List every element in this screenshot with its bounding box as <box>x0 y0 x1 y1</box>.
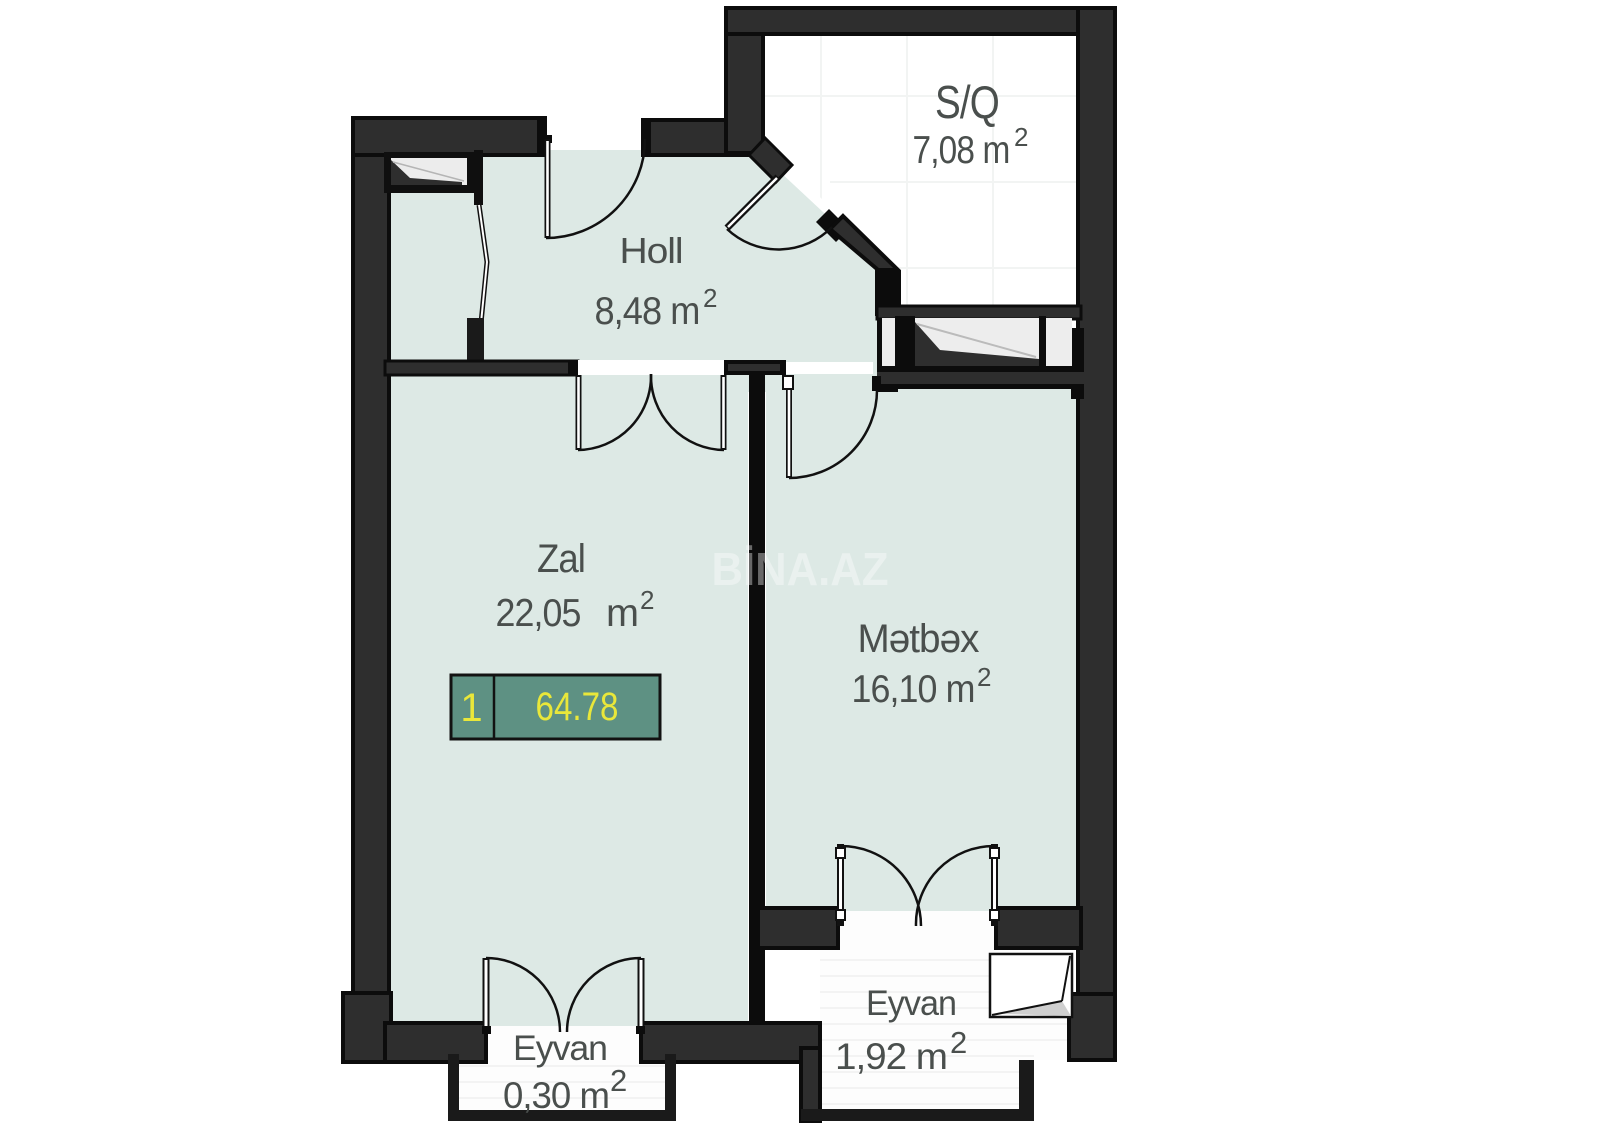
svg-text:Zal: Zal <box>537 537 585 581</box>
svg-text:BİNA.AZ: BİNA.AZ <box>712 543 889 595</box>
svg-text:Eyvan: Eyvan <box>866 984 956 1023</box>
svg-text:7,08 m: 7,08 m <box>913 129 1010 172</box>
svg-text:Eyvan: Eyvan <box>513 1029 607 1068</box>
svg-text:16,10 m: 16,10 m <box>852 668 975 711</box>
svg-text:2: 2 <box>1014 122 1028 152</box>
svg-text:2: 2 <box>950 1025 966 1060</box>
svg-text:8,48 m: 8,48 m <box>595 290 700 333</box>
svg-text:64.78: 64.78 <box>536 685 619 729</box>
svg-text:Mətbəx: Mətbəx <box>858 617 980 661</box>
svg-text:22,05: 22,05 <box>496 592 581 635</box>
svg-text:Holl: Holl <box>620 230 683 271</box>
svg-text:2: 2 <box>977 662 991 692</box>
svg-text:1,92 m: 1,92 m <box>835 1036 947 1077</box>
svg-text:2: 2 <box>703 283 717 313</box>
svg-text:2: 2 <box>640 585 654 615</box>
svg-text:2: 2 <box>610 1063 626 1098</box>
svg-text:m: m <box>606 592 638 635</box>
svg-text:S/Q: S/Q <box>935 76 999 128</box>
svg-text:1: 1 <box>460 686 481 730</box>
svg-text:0,30 m: 0,30 m <box>503 1075 609 1116</box>
